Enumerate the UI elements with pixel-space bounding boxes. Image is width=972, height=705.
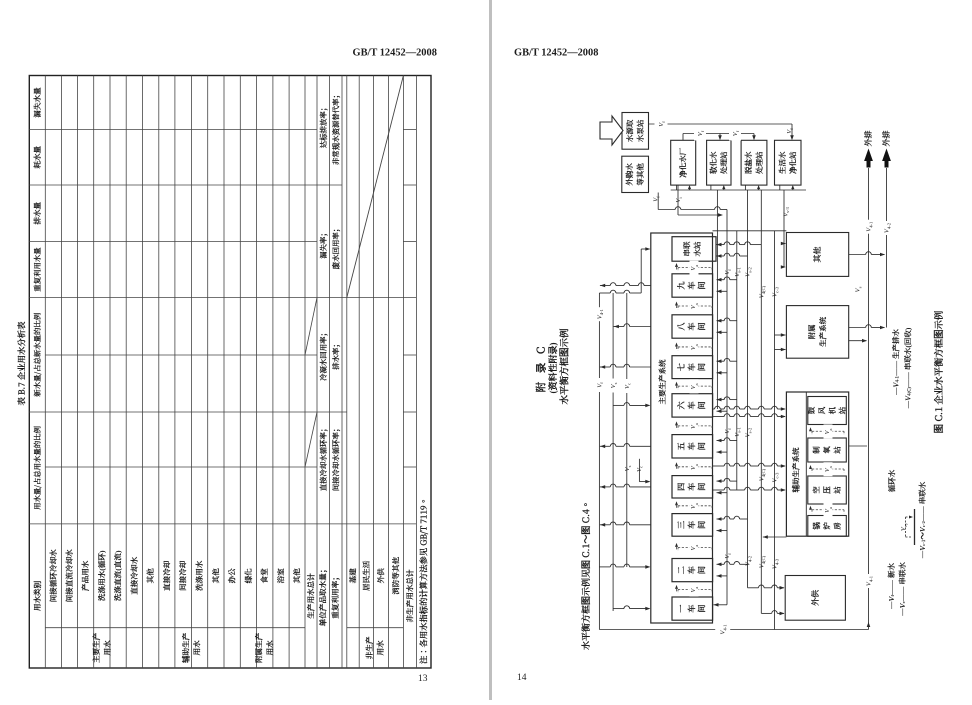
svg-text:Vc: Vc bbox=[635, 466, 643, 472]
svg-text:用水: 用水 bbox=[192, 640, 203, 656]
svg-text:漏失率；: 漏失率； bbox=[318, 229, 329, 259]
svg-text:耗水量: 耗水量 bbox=[32, 145, 43, 168]
svg-text:间接直流冷却水: 间接直流冷却水 bbox=[64, 549, 75, 603]
svg-text:Vf: Vf bbox=[724, 553, 732, 559]
svg-text:鼓: 鼓 bbox=[806, 406, 817, 414]
svg-text:其他: 其他 bbox=[812, 246, 823, 262]
svg-text:Vs-1: Vs-1 bbox=[733, 427, 741, 437]
svg-text:表 B.7 企业用水分析表: 表 B.7 企业用水分析表 bbox=[16, 321, 28, 406]
svg-text:净化水厂: 净化水厂 bbox=[678, 147, 689, 177]
svg-text:Vc-3: Vc-3 bbox=[771, 472, 779, 483]
svg-text:非生产用水总计: 非生产用水总计 bbox=[404, 569, 415, 623]
svg-text:其他: 其他 bbox=[145, 568, 156, 584]
svg-text:居民生活: 居民生活 bbox=[361, 560, 372, 591]
svg-text:Vs-3: Vs-3 bbox=[782, 207, 790, 217]
svg-text:注：各用水指标的计算方法参见 GB/T 7119。: 注：各用水指标的计算方法参见 GB/T 7119。 bbox=[418, 497, 430, 664]
svg-text:软化水: 软化水 bbox=[708, 151, 719, 174]
svg-text:重复利用率；: 重复利用率； bbox=[330, 573, 341, 619]
svg-text:串联: 串联 bbox=[681, 241, 692, 256]
svg-text:GB/T 12452—2008: GB/T 12452—2008 bbox=[353, 48, 437, 59]
svg-text:附属: 附属 bbox=[807, 324, 818, 339]
svg-text:外排: 外排 bbox=[863, 131, 874, 147]
svg-text:直接冷却水循环率；: 直接冷却水循环率； bbox=[318, 425, 329, 492]
svg-text:辅助生产系统: 辅助生产系统 bbox=[791, 447, 802, 492]
svg-text:洗涤直流(直流): 洗涤直流(直流) bbox=[113, 550, 124, 601]
svg-text:炉: 炉 bbox=[822, 522, 833, 530]
svg-text:Vcy: Vcy bbox=[900, 522, 908, 531]
svg-text:新水量/占总新水量的比例: 新水量/占总新水量的比例 bbox=[32, 312, 43, 397]
svg-text:站: 站 bbox=[832, 486, 843, 494]
svg-text:用水: 用水 bbox=[102, 640, 113, 656]
svg-text:Vs-2: Vs-2 bbox=[744, 267, 752, 277]
svg-text:用水类别: 用水类别 bbox=[32, 580, 43, 611]
svg-text:间: 间 bbox=[697, 442, 708, 450]
svg-text:辅助生产: 辅助生产 bbox=[180, 632, 191, 663]
svg-text:外供: 外供 bbox=[376, 568, 387, 584]
svg-text:用水量/占总用水量的比例: 用水量/占总用水量的比例 bbox=[32, 425, 43, 510]
svg-text:用水: 用水 bbox=[265, 640, 276, 656]
svg-text:等其他: 等其他 bbox=[635, 163, 646, 186]
svg-text:间: 间 bbox=[697, 566, 708, 574]
svg-text:—V4(C)—— 串联水(回收): —V4(C)—— 串联水(回收) bbox=[902, 327, 913, 409]
svg-text:间接冷却水循环率；: 间接冷却水循环率； bbox=[330, 425, 341, 492]
svg-text:Vs: Vs bbox=[624, 465, 632, 471]
svg-text:洗涤用水(循环): 洗涤用水(循环) bbox=[96, 550, 107, 601]
svg-text:—Vc-1～Vc-2—— 串联水: —Vc-1～Vc-2—— 串联水 bbox=[917, 481, 928, 559]
svg-text:13: 13 bbox=[418, 674, 428, 684]
svg-text:—Vf—— 新水: —Vf—— 新水 bbox=[886, 563, 897, 610]
svg-text:排水量: 排水量 bbox=[32, 201, 43, 225]
svg-text:站: 站 bbox=[837, 406, 848, 414]
svg-text:水源取: 水源取 bbox=[624, 119, 635, 143]
svg-text:空: 空 bbox=[811, 486, 822, 494]
svg-text:Vc-3: Vc-3 bbox=[771, 286, 779, 297]
svg-text:外购水: 外购水 bbox=[624, 163, 635, 186]
svg-text:浴室: 浴室 bbox=[276, 568, 287, 584]
svg-text:生产系统: 生产系统 bbox=[817, 316, 828, 346]
svg-text:办公: 办公 bbox=[227, 568, 238, 584]
svg-text:漏失水量: 漏失水量 bbox=[32, 87, 43, 118]
svg-text:14: 14 bbox=[517, 673, 527, 683]
svg-text:V4-3: V4-3 bbox=[771, 558, 779, 569]
svg-text:达标排放率；: 达标排放率； bbox=[318, 104, 329, 148]
svg-text:—Vs—— 串联水: —Vs—— 串联水 bbox=[897, 562, 908, 617]
svg-text:V4(C): V4(C) bbox=[758, 468, 766, 481]
svg-text:非生产: 非生产 bbox=[364, 636, 375, 659]
svg-text:制: 制 bbox=[811, 446, 822, 454]
svg-text:间: 间 bbox=[697, 483, 708, 491]
svg-text:V4(C): V4(C) bbox=[758, 555, 766, 568]
svg-text:间: 间 bbox=[697, 281, 708, 289]
svg-text:产品用水: 产品用水 bbox=[80, 560, 91, 591]
svg-text:锅: 锅 bbox=[811, 522, 822, 530]
svg-text:Vf: Vf bbox=[786, 128, 794, 134]
svg-text:净化站: 净化站 bbox=[788, 151, 799, 174]
svg-text:间: 间 bbox=[697, 322, 708, 330]
svg-text:Vi: Vi bbox=[675, 197, 683, 203]
svg-text:GB/T 12452—2008: GB/T 12452—2008 bbox=[514, 48, 598, 59]
svg-text:氧: 氧 bbox=[822, 446, 833, 454]
svg-text:基建: 基建 bbox=[348, 568, 359, 584]
svg-text:外排: 外排 bbox=[881, 131, 892, 147]
svg-text:外供: 外供 bbox=[810, 590, 821, 606]
svg-text:排水率；: 排水率； bbox=[330, 340, 341, 371]
svg-text:水泵站: 水泵站 bbox=[635, 119, 646, 143]
svg-text:图 C.1 企业水平衡方框图示例: 图 C.1 企业水平衡方框图示例 bbox=[931, 310, 945, 433]
svg-text:V4(C): V4(C) bbox=[758, 285, 766, 298]
svg-text:生产用水总计: 生产用水总计 bbox=[306, 573, 317, 619]
svg-text:机: 机 bbox=[827, 406, 838, 414]
svg-text:Vf: Vf bbox=[724, 428, 732, 434]
svg-text:间: 间 bbox=[697, 401, 708, 409]
svg-text:Vs-2: Vs-2 bbox=[744, 427, 752, 437]
svg-text:直接冷却水: 直接冷却水 bbox=[129, 556, 140, 594]
svg-text:风: 风 bbox=[816, 406, 827, 414]
svg-text:消防等其他: 消防等其他 bbox=[391, 556, 402, 594]
svg-text:其他: 其他 bbox=[292, 568, 303, 584]
svg-text:站: 站 bbox=[832, 446, 843, 454]
svg-text:水站: 水站 bbox=[692, 241, 703, 257]
svg-text:水平衡方框图示例: 水平衡方框图示例 bbox=[557, 328, 571, 405]
svg-text:房: 房 bbox=[832, 522, 843, 530]
svg-text:间接冷却: 间接冷却 bbox=[178, 560, 189, 591]
svg-text:Vf: Vf bbox=[724, 269, 732, 275]
svg-text:压: 压 bbox=[822, 486, 833, 494]
svg-text:—V4-1—— 生产排水: —V4-1—— 生产排水 bbox=[890, 328, 901, 396]
svg-text:间接循环冷却水: 间接循环冷却水 bbox=[48, 549, 59, 603]
svg-text:循环水: 循环水 bbox=[887, 469, 898, 492]
svg-text:主要生产: 主要生产 bbox=[91, 632, 102, 663]
svg-text:生活水: 生活水 bbox=[777, 151, 788, 174]
svg-text:直接冷却: 直接冷却 bbox=[161, 560, 172, 591]
svg-text:洗涤用水: 洗涤用水 bbox=[194, 560, 205, 591]
svg-text:其他: 其他 bbox=[210, 568, 221, 584]
svg-text:处理站: 处理站 bbox=[754, 151, 765, 175]
svg-text:间: 间 bbox=[697, 604, 708, 612]
svg-text:脱盐水: 脱盐水 bbox=[743, 151, 754, 174]
svg-text:食堂: 食堂 bbox=[259, 568, 270, 584]
svg-text:单位产品取水量；: 单位产品取水量； bbox=[318, 566, 329, 627]
svg-text:冷凝水回用率；: 冷凝水回用率； bbox=[318, 329, 329, 381]
svg-text:水平衡方框图示例见图 C.1～图 C.4。: 水平衡方框图示例见图 C.1～图 C.4。 bbox=[579, 500, 592, 651]
svg-text:非常规水资源替代率；: 非常规水资源替代率； bbox=[330, 91, 341, 165]
svg-text:Vf: Vf bbox=[652, 196, 660, 202]
svg-text:绿化: 绿化 bbox=[243, 568, 254, 584]
svg-text:主要生产系统: 主要生产系统 bbox=[657, 359, 668, 404]
svg-text:间: 间 bbox=[697, 363, 708, 371]
svg-text:重复利用水量: 重复利用水量 bbox=[32, 247, 43, 292]
svg-text:Vs-1: Vs-1 bbox=[733, 267, 741, 277]
svg-text:附属生产: 附属生产 bbox=[253, 632, 264, 663]
svg-text:间: 间 bbox=[697, 521, 708, 529]
svg-text:Vs: Vs bbox=[854, 286, 862, 292]
svg-text:处理站: 处理站 bbox=[719, 151, 730, 175]
svg-text:用水: 用水 bbox=[375, 640, 386, 656]
svg-text:废水回用率；: 废水回用率； bbox=[330, 225, 341, 269]
